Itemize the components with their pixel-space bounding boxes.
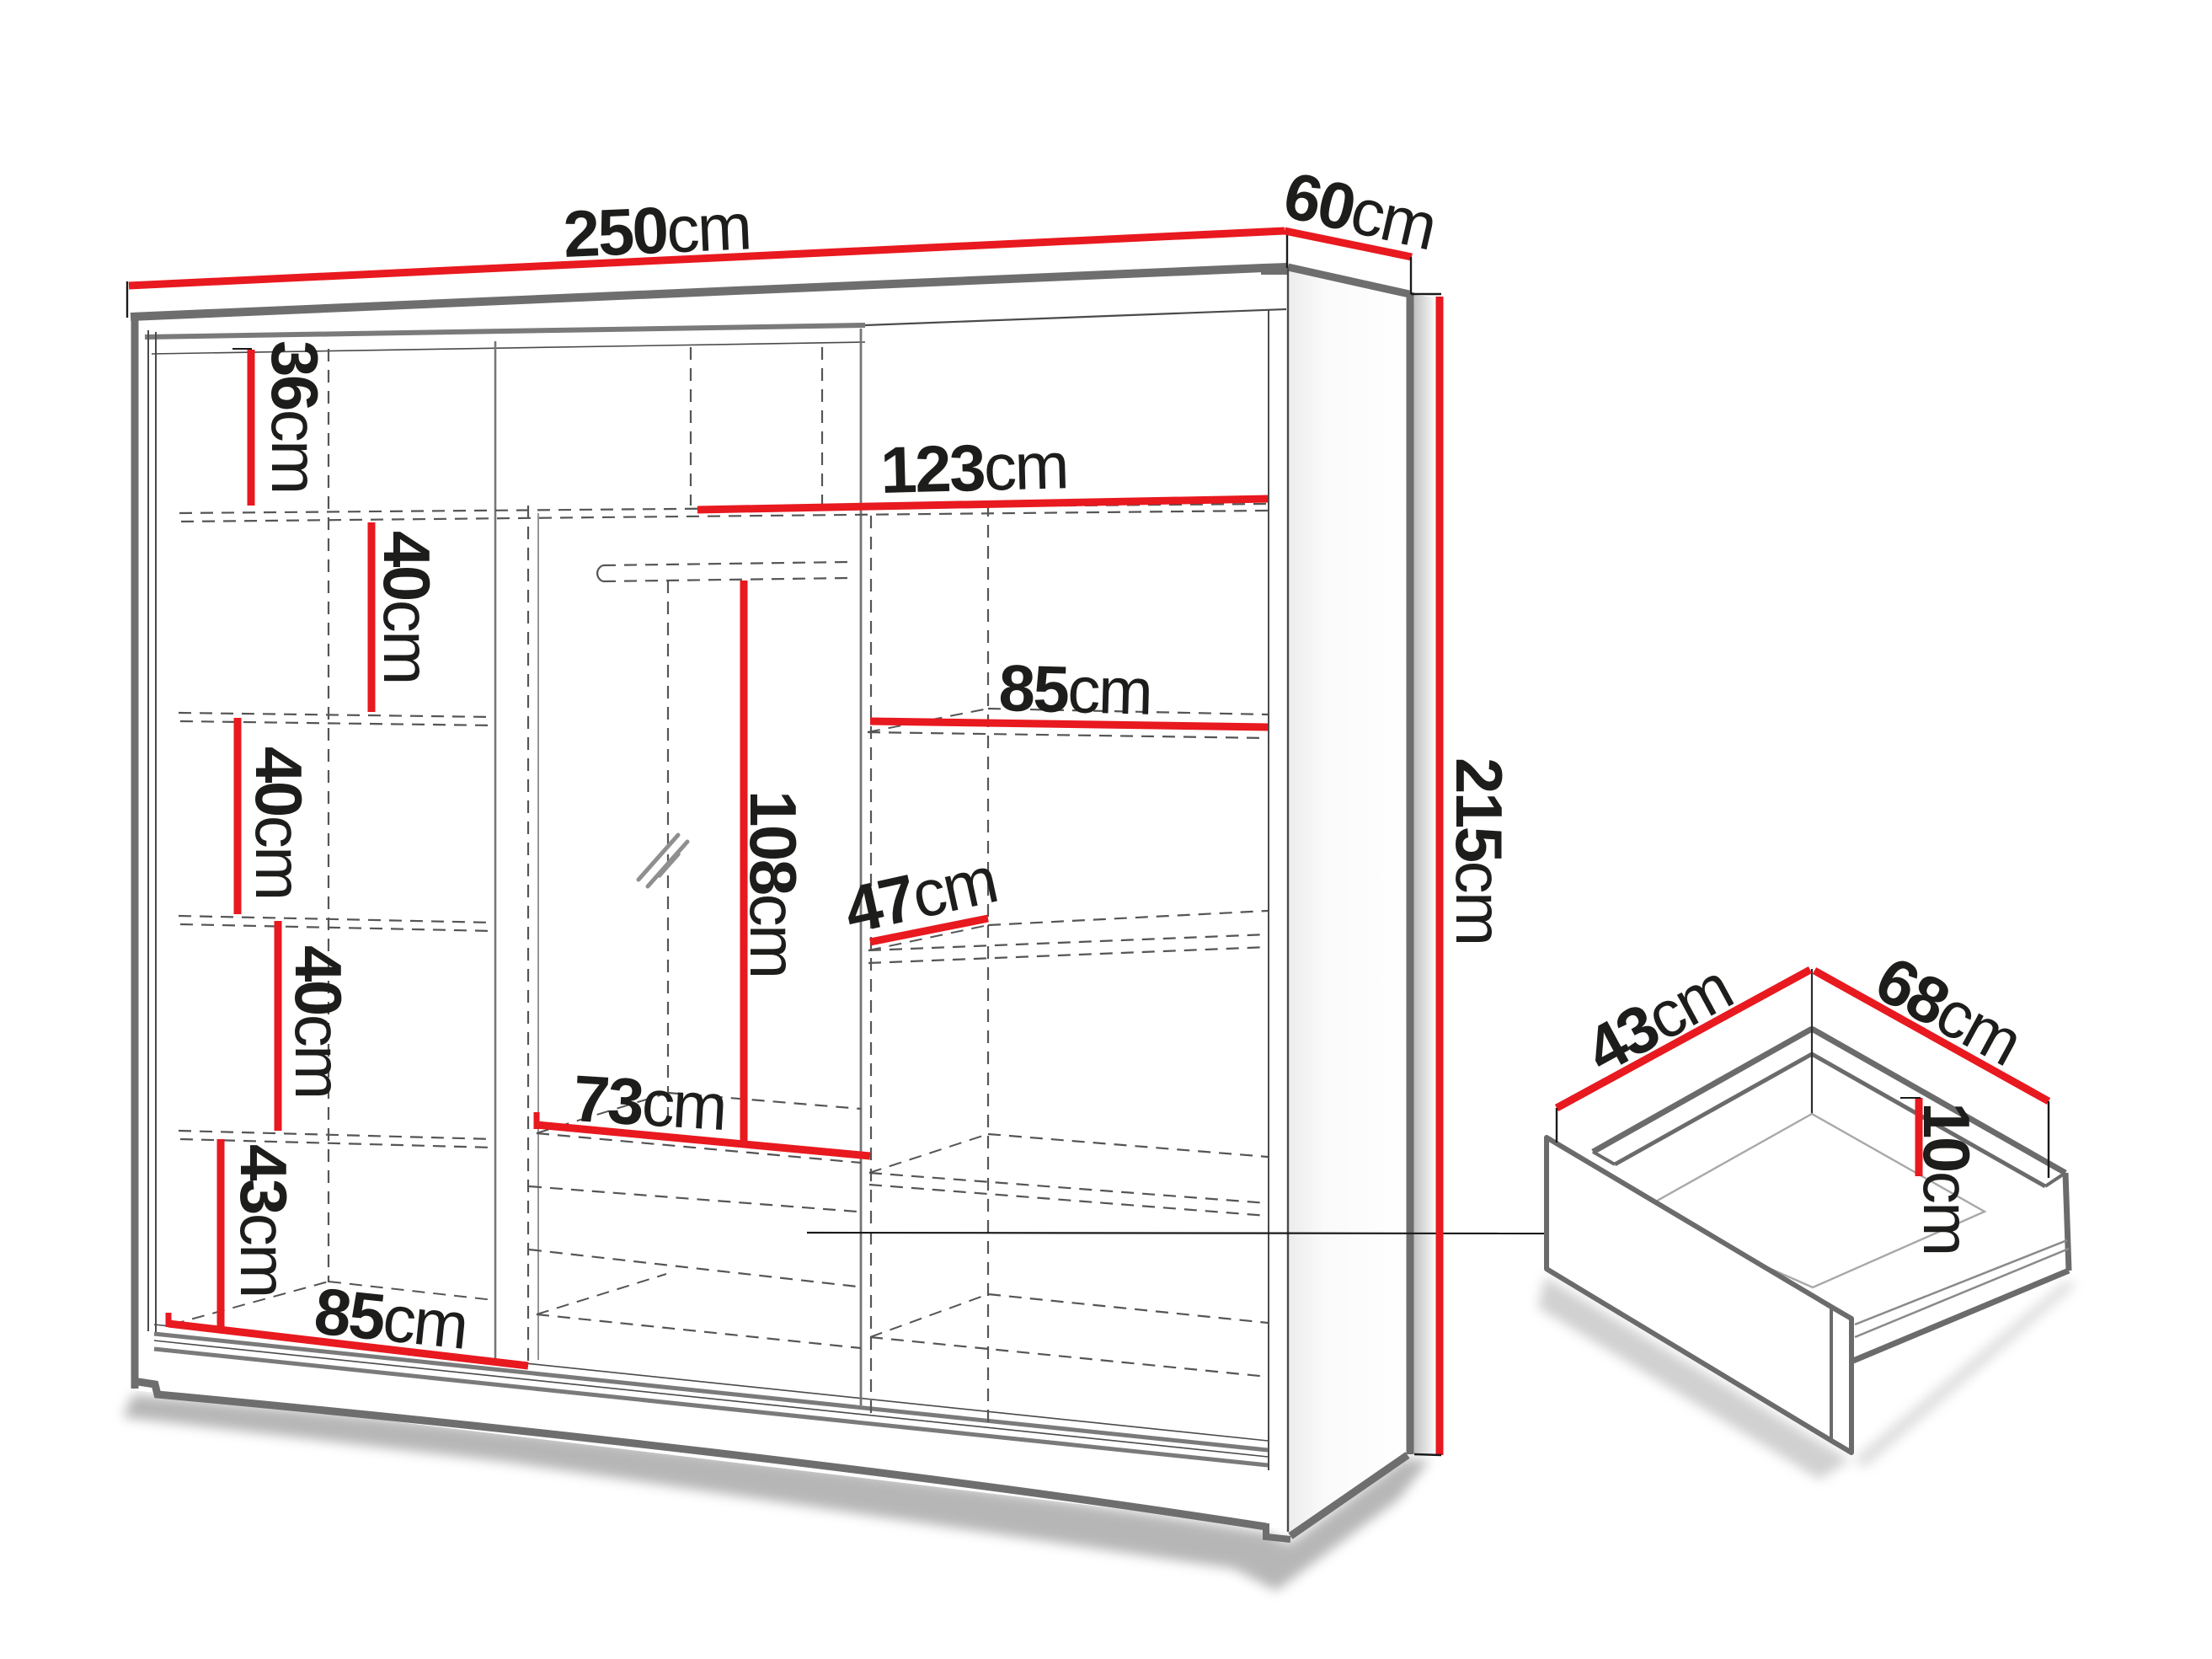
svg-text:250cm: 250cm [562,189,751,271]
svg-text:10cm: 10cm [1910,1102,1984,1255]
svg-text:73cm: 73cm [571,1061,728,1144]
svg-text:85cm: 85cm [311,1273,470,1362]
svg-text:85cm: 85cm [998,650,1152,729]
svg-text:215cm: 215cm [1442,757,1516,945]
svg-text:40cm: 40cm [242,747,316,899]
svg-text:123cm: 123cm [879,428,1068,507]
svg-text:40cm: 40cm [281,945,355,1098]
svg-text:43cm: 43cm [227,1144,301,1297]
svg-text:36cm: 36cm [258,340,332,493]
svg-text:108cm: 108cm [736,790,810,977]
svg-text:40cm: 40cm [370,531,444,683]
